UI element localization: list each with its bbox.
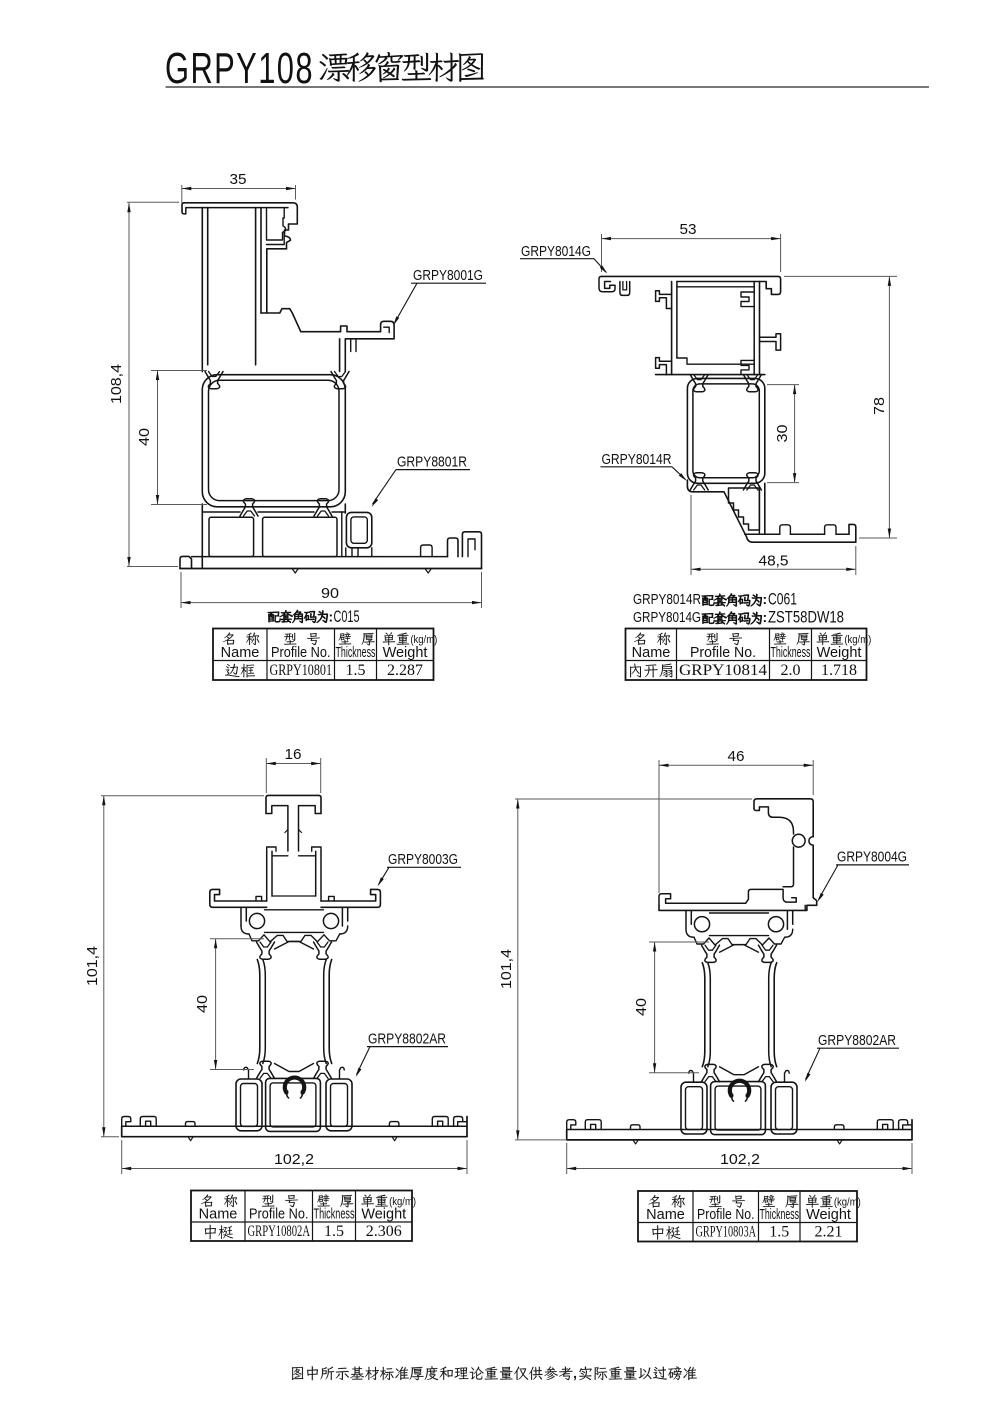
svg-text:30: 30: [774, 425, 791, 443]
svg-text:1.5: 1.5: [324, 1223, 344, 1240]
svg-text:GRPY108: GRPY108: [165, 45, 314, 93]
svg-text:GRPY8003G: GRPY8003G: [388, 851, 458, 868]
svg-text:16: 16: [285, 746, 302, 763]
svg-text:GRPY10814: GRPY10814: [679, 662, 767, 679]
svg-text:46: 46: [728, 748, 745, 765]
svg-text:Name: Name: [199, 1207, 238, 1223]
svg-text:2.21: 2.21: [815, 1224, 843, 1241]
svg-text:GRPY8802AR: GRPY8802AR: [368, 1031, 446, 1048]
svg-text:GRPY8014G: GRPY8014G: [633, 609, 701, 626]
svg-text:40: 40: [194, 995, 211, 1013]
svg-text:Profile No.: Profile No.: [690, 645, 756, 661]
svg-text:GRPY8802AR: GRPY8802AR: [818, 1032, 896, 1049]
svg-text:78: 78: [871, 397, 888, 415]
svg-text:102,2: 102,2: [720, 1151, 760, 1168]
svg-text:Name: Name: [221, 645, 260, 661]
svg-text:GRPY8001G: GRPY8001G: [413, 267, 483, 284]
svg-text:GRPY8014G: GRPY8014G: [521, 243, 591, 260]
svg-text::: :: [763, 591, 768, 607]
svg-text:Name: Name: [632, 645, 671, 661]
svg-text::: :: [763, 609, 768, 625]
svg-text:2.306: 2.306: [366, 1223, 402, 1240]
svg-text:90: 90: [321, 585, 339, 602]
svg-text:102,2: 102,2: [274, 1151, 314, 1168]
svg-text:Name: Name: [646, 1207, 685, 1223]
svg-text:1.718: 1.718: [821, 662, 857, 679]
svg-text:GRPY10801: GRPY10801: [270, 662, 333, 679]
svg-text:Weight: Weight: [361, 1207, 406, 1223]
svg-text:53: 53: [680, 221, 697, 238]
svg-text:Thickness: Thickness: [760, 1207, 800, 1223]
svg-text:2.0: 2.0: [781, 662, 801, 679]
svg-text:40: 40: [633, 998, 650, 1016]
svg-text:Profile No.: Profile No.: [271, 645, 331, 661]
svg-text:GRPY8014R: GRPY8014R: [602, 451, 672, 468]
svg-text:1.5: 1.5: [346, 662, 366, 679]
svg-text:GRPY10803A: GRPY10803A: [696, 1224, 757, 1241]
svg-text:35: 35: [230, 171, 247, 188]
svg-text:101,4: 101,4: [498, 949, 515, 989]
svg-text:108,4: 108,4: [108, 364, 125, 404]
svg-text:48,5: 48,5: [759, 553, 789, 570]
svg-text:40: 40: [136, 428, 153, 446]
svg-text:Weight: Weight: [806, 1207, 851, 1223]
svg-text:Thickness: Thickness: [336, 645, 376, 661]
svg-text:ZST58DW18: ZST58DW18: [768, 609, 844, 627]
svg-text:2.287: 2.287: [387, 662, 423, 679]
svg-text:Thickness: Thickness: [314, 1207, 355, 1223]
svg-text:Profile No.: Profile No.: [697, 1207, 755, 1223]
svg-text:GRPY8004G: GRPY8004G: [837, 849, 907, 866]
svg-text:,: ,: [573, 1365, 577, 1381]
svg-text:Profile No.: Profile No.: [249, 1207, 309, 1223]
svg-text:GRPY10802A: GRPY10802A: [248, 1223, 311, 1240]
svg-text:GRPY8801R: GRPY8801R: [397, 454, 467, 471]
svg-text:C061: C061: [768, 591, 797, 609]
svg-text:Weight: Weight: [383, 645, 428, 661]
svg-text::: :: [329, 609, 334, 625]
svg-text:101,4: 101,4: [84, 946, 101, 986]
svg-text:Weight: Weight: [817, 645, 862, 661]
svg-text:Thickness: Thickness: [771, 645, 811, 661]
svg-text:C015: C015: [334, 608, 360, 626]
svg-text:GRPY8014R: GRPY8014R: [633, 591, 701, 608]
svg-text:1.5: 1.5: [769, 1224, 789, 1241]
